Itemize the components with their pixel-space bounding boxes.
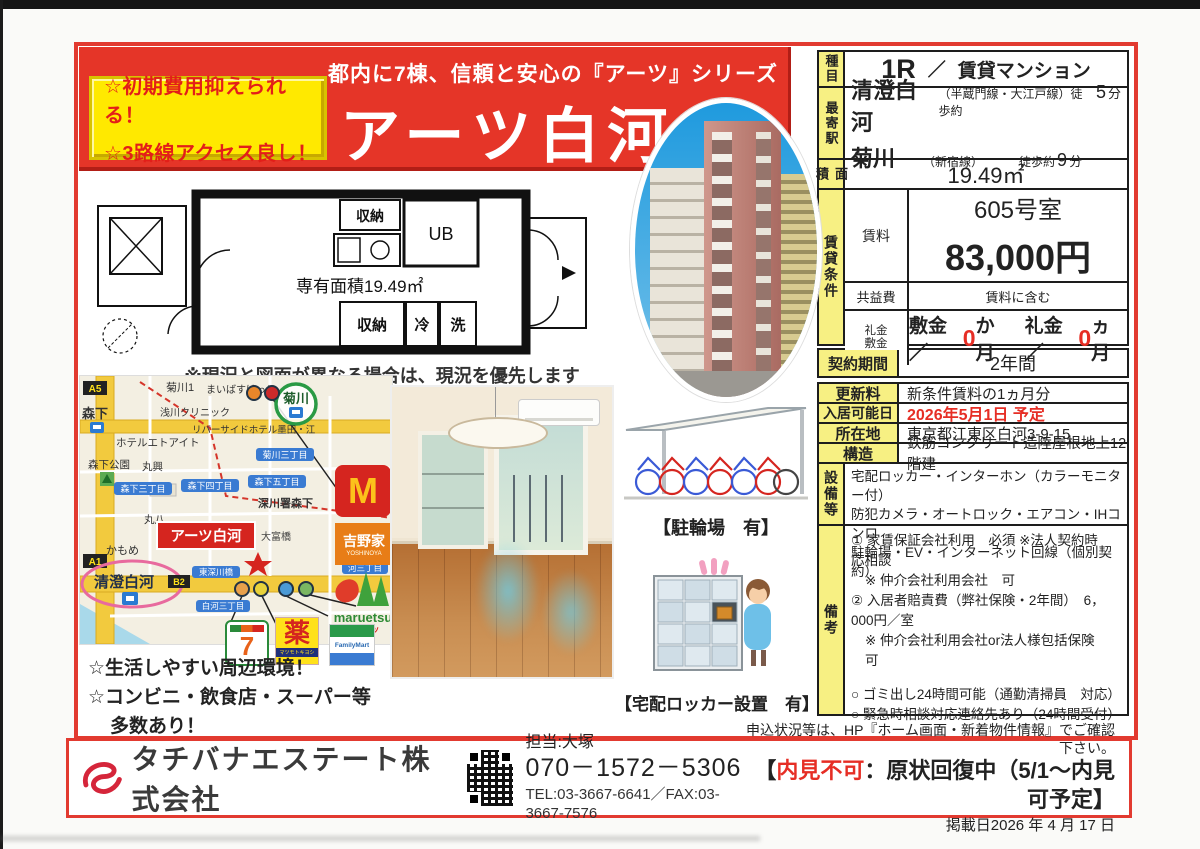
svg-text:浅川クリニック: 浅川クリニック xyxy=(160,406,230,419)
svg-text:B2: B2 xyxy=(173,577,185,587)
svg-text:菊川三丁目: 菊川三丁目 xyxy=(262,450,307,460)
svg-text:大富橋: 大富橋 xyxy=(261,530,291,543)
mcdonalds-logo-icon: M xyxy=(335,465,391,517)
svg-text:森下三丁目: 森下三丁目 xyxy=(120,483,165,494)
yoshinoya-logo-icon: 吉野家 YOSHINOYA xyxy=(335,523,393,565)
svg-text:森下公園: 森下公園 xyxy=(88,458,130,471)
series-subtitle: 都内に7棟、信頼と安心の『アーツ』シリーズ xyxy=(328,58,778,88)
building-photo xyxy=(630,98,822,402)
publish-date: 掲載日2026 年 4 月 17 日 xyxy=(745,816,1115,836)
row-conditions: 賃貸条件 賃料 605号室 83,000円 共益費 賃料に含む 礼金 敷金 xyxy=(817,188,1129,346)
row-rent: 賃料 605号室 83,000円 xyxy=(845,190,1127,283)
footer-right-block: 申込状況等は、HP『ホーム画面・新着物件情報』でご確認下さい。 【内見不可：原状… xyxy=(745,721,1119,835)
property-spec-table: 種目 1R ／ 賃貸マンション 最寄駅 清澄白河 （半蔵門線・大江戸線）徒歩約 … xyxy=(817,50,1129,716)
property-title: アーツ白河 xyxy=(340,88,675,175)
svg-text:リバーサイドホテル墨田・江: リバーサイドホテル墨田・江 xyxy=(192,425,316,436)
svg-text:冷: 冷 xyxy=(414,316,429,334)
yoshinoya-label: 吉野家 xyxy=(343,531,385,551)
svg-text:収納: 収納 xyxy=(356,208,384,224)
svg-text:丸興: 丸興 xyxy=(142,460,163,473)
footer-bar: タチバナエステート株式会社 担当:大塚 070－1572－5306 TEL:03… xyxy=(66,738,1132,818)
note-line-1: ☆生活しやすい周辺環境！ xyxy=(88,654,371,683)
floor-plan: 収納 UB 専有面積19.49㎡ 収納 冷 洗 xyxy=(84,188,600,366)
viewing-notice: 【内見不可：原状回復中（5/1～内見可予定】 xyxy=(745,757,1115,814)
svg-text:かもめ: かもめ xyxy=(106,544,139,557)
row-movein: 入居可能日 2026年5月1日 予定 xyxy=(817,402,1129,424)
svg-text:専有面積19.49㎡: 専有面積19.49㎡ xyxy=(296,277,424,296)
company-name: タチバナエステート株式会社 xyxy=(132,738,454,818)
row-type-label: 種目 xyxy=(819,52,845,86)
mcdonalds-m: M xyxy=(348,473,378,509)
svg-text:清澄白河: 清澄白河 xyxy=(94,573,154,591)
svg-text:深川署森下: 深川署森下 xyxy=(258,496,313,510)
badge-line-2: ☆3路線アクセス良し！ xyxy=(104,137,324,166)
bike-parking-caption: 【駐輪場 有】 xyxy=(626,514,806,540)
station-1: 清澄白河 （半蔵門線・大江戸線）徒歩約 5 分 xyxy=(851,73,1121,137)
row-stations: 最寄駅 清澄白河 （半蔵門線・大江戸線）徒歩約 5 分 菊川 （新宿線） 徒歩約… xyxy=(817,86,1129,160)
scan-edge-top xyxy=(0,0,1200,9)
company-logo-icon xyxy=(79,752,124,804)
row-equipment: 設備等 宅配ロッカー・インターホン（カラーモニター付） 防犯カメラ・オートロック… xyxy=(817,462,1129,526)
row-term: 契約期間 2年間 xyxy=(817,348,1129,378)
svg-text:東深川橋: 東深川橋 xyxy=(199,567,234,577)
flyer-main-frame: 都内に7棟、信頼と安心の『アーツ』シリーズ アーツ白河 ☆初期費用抑えられる！ … xyxy=(74,42,1138,740)
svg-text:森下四丁目: 森下四丁目 xyxy=(187,480,232,491)
bicycle-parking-illustration xyxy=(620,398,810,512)
qr-code xyxy=(467,750,513,806)
building-facade-main xyxy=(704,121,780,397)
note-line-3: 多数あり！ xyxy=(88,712,371,741)
svg-text:森下五丁目: 森下五丁目 xyxy=(254,476,299,487)
highlight-badge: ☆初期費用抑えられる！ ☆3路線アクセス良し！ xyxy=(89,76,327,160)
svg-text:森下: 森下 xyxy=(82,406,108,421)
application-info: 申込状況等は、HP『ホーム画面・新着物件情報』でご確認下さい。 xyxy=(745,721,1115,757)
row-remarks: 備考 ① 家賃保証会社利用 必須 ※法人契約時 応相談 ※ 仲介会社利用会社 可… xyxy=(817,524,1129,716)
badge-line-1: ☆初期費用抑えられる！ xyxy=(104,70,324,128)
contact-mobile: 070－1572－5306 xyxy=(525,753,744,784)
yoshinoya-en: YOSHINOYA xyxy=(346,551,381,557)
note-line-2: ☆コンビニ・飲食店・スーパー等 xyxy=(88,683,371,712)
room-window-left xyxy=(418,431,488,549)
svg-text:白河三丁目: 白河三丁目 xyxy=(202,601,245,611)
building-neighbor xyxy=(781,174,817,397)
room-number: 605号室 xyxy=(974,190,1062,225)
maruetsu-en: maruetsu xyxy=(334,610,393,625)
room-photo xyxy=(390,385,614,679)
delivery-locker-illustration xyxy=(648,558,780,676)
svg-text:洗: 洗 xyxy=(450,316,465,334)
svg-text:ホテルエトアイト: ホテルエトアイト xyxy=(116,437,199,449)
svg-text:菊川1: 菊川1 xyxy=(166,381,194,394)
building-facade-left xyxy=(650,168,712,397)
neighborhood-notes: ☆生活しやすい周辺環境！ ☆コンビニ・飲食店・スーパー等 多数あり！ xyxy=(88,654,371,741)
svg-text:収納: 収納 xyxy=(357,316,387,334)
locker-caption: 【宅配ロッカー設置 有】 xyxy=(612,690,822,715)
rent-amount: 83,000円 xyxy=(945,229,1091,281)
maruetsu-mark xyxy=(335,570,391,610)
scan-edge-bottom xyxy=(0,836,760,841)
svg-text:アーツ白河: アーツ白河 xyxy=(170,527,242,545)
scan-edge-left xyxy=(0,0,3,849)
svg-text:菊川: 菊川 xyxy=(283,391,309,406)
contact-telfax: TEL:03-3667-6641／FAX:03-3667-7576 xyxy=(525,786,744,824)
pendant-light xyxy=(448,417,548,449)
svg-text:UB: UB xyxy=(428,224,453,244)
contact-person: 担当:大塚 xyxy=(525,733,744,753)
building-street xyxy=(635,371,817,397)
svg-text:A5: A5 xyxy=(89,384,102,395)
contact-block: 担当:大塚 070－1572－5306 TEL:03-3667-6641／FAX… xyxy=(525,733,744,824)
row-common-fee: 共益費 賃料に含む xyxy=(845,283,1127,311)
row-structure: 構造 鉄筋コンクリート造陸屋根地上12階建 xyxy=(817,442,1129,464)
row-area: 面積 19.49㎡ xyxy=(817,158,1129,190)
